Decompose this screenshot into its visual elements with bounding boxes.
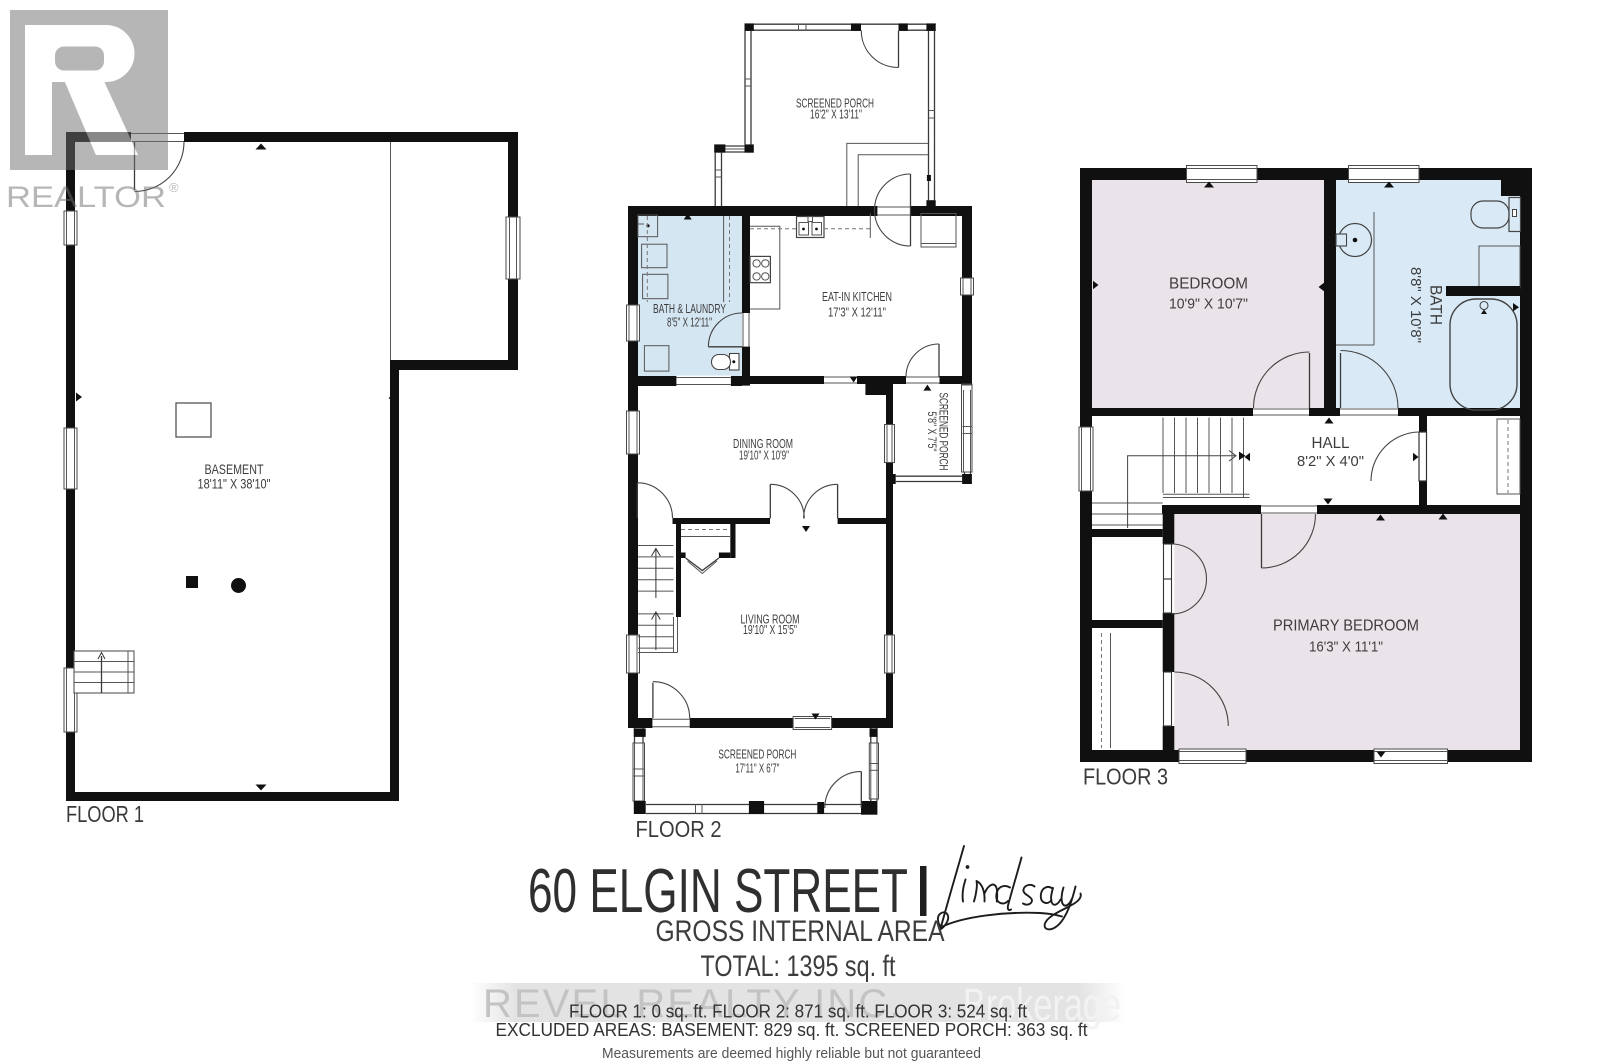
svg-text:FLOOR 3: FLOOR 3 xyxy=(1083,765,1168,790)
svg-text:PRIMARY BEDROOM: PRIMARY BEDROOM xyxy=(1273,618,1419,635)
svg-text:FLOOR 1: FLOOR 1 xyxy=(66,802,144,827)
svg-text:REALTOR: REALTOR xyxy=(6,181,166,214)
svg-text:TOTAL: 1395 sq. ft: TOTAL: 1395 sq. ft xyxy=(701,948,896,982)
svg-text:HALL: HALL xyxy=(1312,435,1350,452)
svg-text:19'10" X 15'5": 19'10" X 15'5" xyxy=(743,622,797,637)
svg-text:8'8" X 10'8": 8'8" X 10'8" xyxy=(1407,267,1424,343)
svg-text:BATH: BATH xyxy=(1427,285,1445,325)
svg-text:18'11" X 38'10": 18'11" X 38'10" xyxy=(198,477,271,492)
svg-text:17'11" X 6'7": 17'11" X 6'7" xyxy=(735,762,779,776)
svg-text:FLOOR 2: FLOOR 2 xyxy=(636,817,722,842)
svg-text:BASEMENT: BASEMENT xyxy=(205,462,264,477)
svg-text:8'5" X 12'11": 8'5" X 12'11" xyxy=(667,315,712,330)
svg-text:10'9" X 10'7": 10'9" X 10'7" xyxy=(1169,296,1248,313)
svg-text:5'8" X 7'5": 5'8" X 7'5" xyxy=(925,412,939,452)
svg-text:17'3" X 12'11": 17'3" X 12'11" xyxy=(828,305,886,320)
svg-text:GROSS INTERNAL AREA: GROSS INTERNAL AREA xyxy=(656,914,946,948)
svg-text:SCREENED PORCH: SCREENED PORCH xyxy=(718,748,796,762)
svg-text:EXCLUDED AREAS: BASEMENT: 829: EXCLUDED AREAS: BASEMENT: 829 sq. ft. SC… xyxy=(495,1019,1087,1041)
svg-text:BEDROOM: BEDROOM xyxy=(1169,276,1248,293)
svg-text:16'2" X 13'11": 16'2" X 13'11" xyxy=(810,108,862,122)
svg-text:Measurements are deemed highly: Measurements are deemed highly reliable … xyxy=(602,1045,981,1062)
svg-text:®: ® xyxy=(169,180,179,195)
svg-text:19'10" X 10'9": 19'10" X 10'9" xyxy=(739,448,789,463)
svg-text:EAT-IN KITCHEN: EAT-IN KITCHEN xyxy=(822,289,892,304)
svg-text:8'2" X 4'0": 8'2" X 4'0" xyxy=(1297,453,1364,470)
svg-text:16'3" X 11'1": 16'3" X 11'1" xyxy=(1309,639,1383,656)
